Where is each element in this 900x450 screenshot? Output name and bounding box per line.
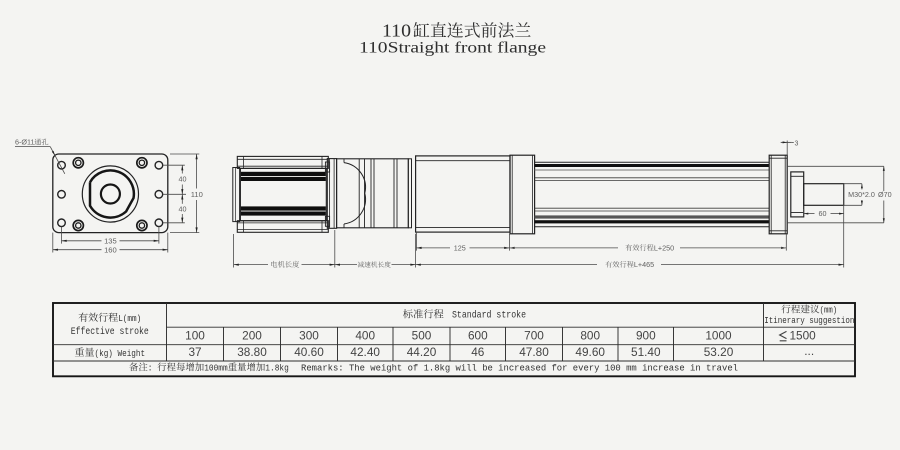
svg-text:1500: 1500 <box>790 329 817 343</box>
svg-text:Itinerary suggestion: Itinerary suggestion <box>764 315 854 326</box>
svg-text:200: 200 <box>242 329 262 343</box>
svg-text:900: 900 <box>636 329 656 343</box>
svg-text:M30*2.0: M30*2.0 <box>848 190 875 199</box>
svg-text:110: 110 <box>382 20 411 40</box>
svg-text:...: ... <box>804 344 814 358</box>
svg-text:40.60: 40.60 <box>294 345 324 359</box>
svg-text:46: 46 <box>471 345 485 359</box>
svg-text:110: 110 <box>191 190 203 199</box>
svg-text:L+465: L+465 <box>634 260 654 269</box>
svg-text:3: 3 <box>795 140 799 147</box>
svg-text::: : <box>148 362 157 373</box>
svg-text:500: 500 <box>412 329 432 343</box>
svg-text:37: 37 <box>188 345 201 359</box>
svg-text:49.60: 49.60 <box>575 345 605 359</box>
svg-text:(kg) Weight: (kg) Weight <box>95 348 146 359</box>
svg-text:47.80: 47.80 <box>519 345 549 359</box>
svg-text:53.20: 53.20 <box>704 345 734 359</box>
svg-text:135: 135 <box>104 236 117 245</box>
svg-text:300: 300 <box>299 329 319 343</box>
svg-text:44.20: 44.20 <box>407 345 437 359</box>
svg-text:L+250: L+250 <box>654 243 674 252</box>
svg-text:40: 40 <box>179 204 187 213</box>
svg-text:42.40: 42.40 <box>350 345 380 359</box>
svg-text:Ø70: Ø70 <box>878 190 892 199</box>
svg-text:38.80: 38.80 <box>237 345 267 359</box>
svg-text:Standard stroke: Standard stroke <box>452 310 526 322</box>
svg-text:100: 100 <box>185 329 205 343</box>
svg-text:1.8kg: 1.8kg <box>265 362 289 373</box>
svg-text:Effective stroke: Effective stroke <box>71 326 149 337</box>
svg-text:1000: 1000 <box>705 329 732 343</box>
svg-text:600: 600 <box>468 329 488 343</box>
svg-text:40: 40 <box>179 175 187 184</box>
svg-text:160: 160 <box>104 245 117 254</box>
svg-text:6-Ø11: 6-Ø11 <box>15 138 34 147</box>
svg-text:700: 700 <box>524 329 544 343</box>
svg-text:110Straight front flange: 110Straight front flange <box>359 40 546 57</box>
svg-text:125: 125 <box>454 243 466 252</box>
svg-text:L(mm): L(mm) <box>118 313 141 324</box>
svg-text:100mm: 100mm <box>204 362 228 373</box>
svg-text:51.40: 51.40 <box>631 345 661 359</box>
svg-text:800: 800 <box>580 329 600 343</box>
svg-text:Remarks: The weight of 1.8kg w: Remarks: The weight of 1.8kg will be inc… <box>301 362 738 373</box>
svg-text:60: 60 <box>819 209 827 218</box>
svg-text:400: 400 <box>355 329 375 343</box>
